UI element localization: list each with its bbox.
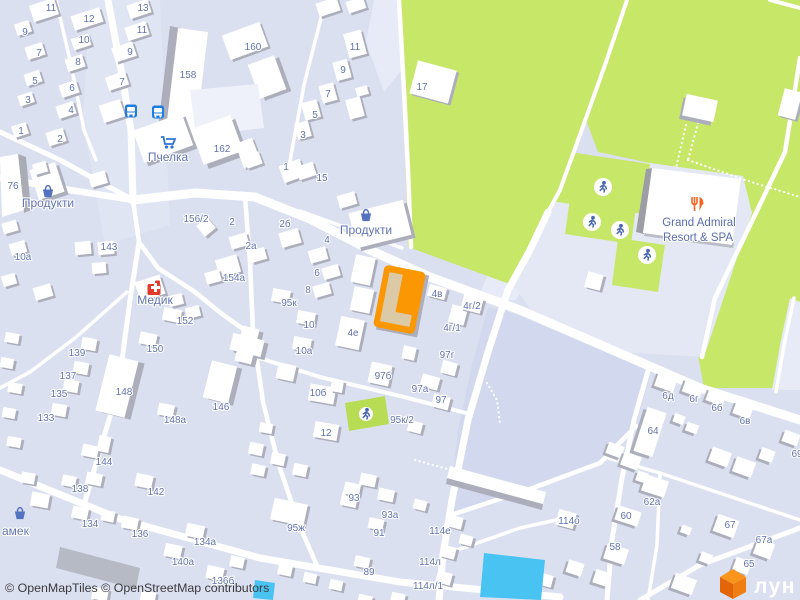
svg-text:10б: 10б (310, 387, 327, 399)
svg-text:162: 162 (214, 144, 231, 155)
svg-text:6б: 6б (711, 402, 723, 414)
svg-text:15: 15 (316, 173, 328, 184)
svg-text:10а: 10а (296, 346, 313, 357)
svg-text:95к: 95к (281, 298, 297, 309)
svg-text:62а: 62а (644, 497, 661, 508)
svg-text:© OpenMapTiles © OpenStreetMap: © OpenMapTiles © OpenStreetMap contribut… (5, 581, 269, 595)
svg-text:160: 160 (245, 42, 262, 53)
svg-text:133: 133 (38, 413, 55, 424)
svg-text:114л: 114л (419, 557, 441, 568)
svg-text:158: 158 (180, 70, 197, 81)
svg-text:148: 148 (116, 387, 133, 398)
svg-text:154а: 154а (223, 273, 246, 284)
svg-text:7: 7 (36, 48, 42, 59)
svg-text:3: 3 (300, 130, 306, 141)
svg-text:114о: 114о (558, 516, 580, 527)
svg-text:12: 12 (83, 14, 95, 25)
svg-text:97а: 97а (412, 384, 429, 395)
svg-text:Продукти: Продукти (22, 196, 74, 210)
svg-text:17: 17 (416, 82, 428, 93)
svg-text:Пчелка: Пчелка (148, 150, 189, 164)
svg-text:152: 152 (177, 316, 194, 327)
svg-text:10: 10 (78, 35, 90, 46)
svg-text:6: 6 (314, 268, 320, 279)
svg-text:8: 8 (75, 57, 81, 68)
svg-text:5: 5 (32, 76, 38, 87)
svg-text:6г: 6г (689, 394, 699, 405)
svg-text:138: 138 (72, 484, 89, 495)
svg-text:91: 91 (373, 528, 385, 539)
svg-text:4: 4 (68, 105, 74, 116)
svg-text:11: 11 (137, 25, 148, 36)
svg-text:148а: 148а (164, 415, 187, 426)
svg-text:2: 2 (229, 217, 235, 228)
svg-text:12: 12 (320, 428, 332, 439)
svg-text:69: 69 (791, 449, 800, 460)
svg-text:139: 139 (69, 348, 86, 359)
svg-text:1: 1 (283, 162, 289, 173)
svg-text:11: 11 (350, 42, 361, 53)
svg-text:4е: 4е (347, 328, 359, 339)
svg-text:лун: лун (754, 575, 796, 598)
svg-text:6д: 6д (662, 391, 674, 402)
svg-text:156/2: 156/2 (183, 214, 208, 225)
svg-text:114е: 114е (429, 526, 451, 537)
svg-text:114л/1: 114л/1 (413, 581, 444, 592)
svg-text:2а: 2а (245, 241, 257, 252)
svg-text:1: 1 (18, 126, 24, 137)
svg-text:93: 93 (348, 493, 360, 504)
svg-text:Медик: Медик (137, 293, 173, 307)
svg-text:142: 142 (148, 487, 165, 498)
svg-text:95к/2: 95к/2 (390, 415, 414, 426)
svg-text:89: 89 (363, 567, 375, 578)
svg-text:4г/1: 4г/1 (443, 323, 461, 334)
svg-text:65: 65 (743, 559, 755, 570)
svg-text:76: 76 (7, 181, 19, 192)
svg-text:6в: 6в (740, 416, 751, 427)
svg-text:146: 146 (213, 402, 230, 413)
svg-text:4: 4 (324, 235, 330, 246)
svg-text:8: 8 (305, 285, 311, 296)
svg-text:134а: 134а (194, 537, 217, 548)
svg-text:2: 2 (57, 134, 63, 145)
svg-text:9: 9 (22, 27, 28, 38)
svg-text:Grand Admiral: Grand Admiral (662, 217, 736, 229)
svg-text:97: 97 (435, 395, 447, 406)
svg-text:4г/2: 4г/2 (463, 301, 481, 312)
svg-text:9: 9 (127, 47, 133, 58)
svg-text:5: 5 (312, 110, 318, 121)
svg-text:135: 135 (51, 389, 68, 400)
svg-text:7: 7 (119, 77, 125, 88)
svg-text:60: 60 (620, 511, 632, 522)
svg-text:9: 9 (340, 65, 346, 76)
svg-text:амек: амек (2, 524, 30, 538)
svg-text:136: 136 (132, 529, 149, 540)
svg-text:137: 137 (60, 371, 77, 382)
svg-text:58: 58 (609, 542, 621, 553)
svg-text:Resort & SPA: Resort & SPA (663, 232, 733, 244)
svg-text:95ж: 95ж (287, 523, 305, 534)
svg-text:Продукти: Продукти (340, 223, 392, 237)
svg-text:10а: 10а (15, 252, 32, 263)
svg-text:97б: 97б (375, 370, 392, 382)
svg-text:6: 6 (69, 83, 75, 94)
svg-text:143: 143 (101, 242, 118, 253)
svg-text:4в: 4в (432, 289, 443, 300)
svg-text:7: 7 (325, 89, 331, 100)
svg-text:134: 134 (82, 519, 99, 530)
svg-text:93а: 93а (382, 510, 399, 521)
svg-text:67: 67 (724, 520, 736, 531)
svg-text:150: 150 (147, 344, 164, 355)
svg-text:11: 11 (46, 3, 57, 14)
svg-text:64: 64 (647, 426, 659, 437)
svg-text:67а: 67а (756, 535, 773, 546)
svg-text:144: 144 (96, 457, 113, 468)
svg-text:97г: 97г (440, 350, 455, 361)
svg-text:3: 3 (25, 95, 31, 106)
svg-text:10: 10 (303, 320, 315, 331)
svg-text:2б: 2б (279, 218, 291, 230)
svg-text:140а: 140а (172, 557, 195, 568)
svg-text:13: 13 (137, 3, 149, 14)
